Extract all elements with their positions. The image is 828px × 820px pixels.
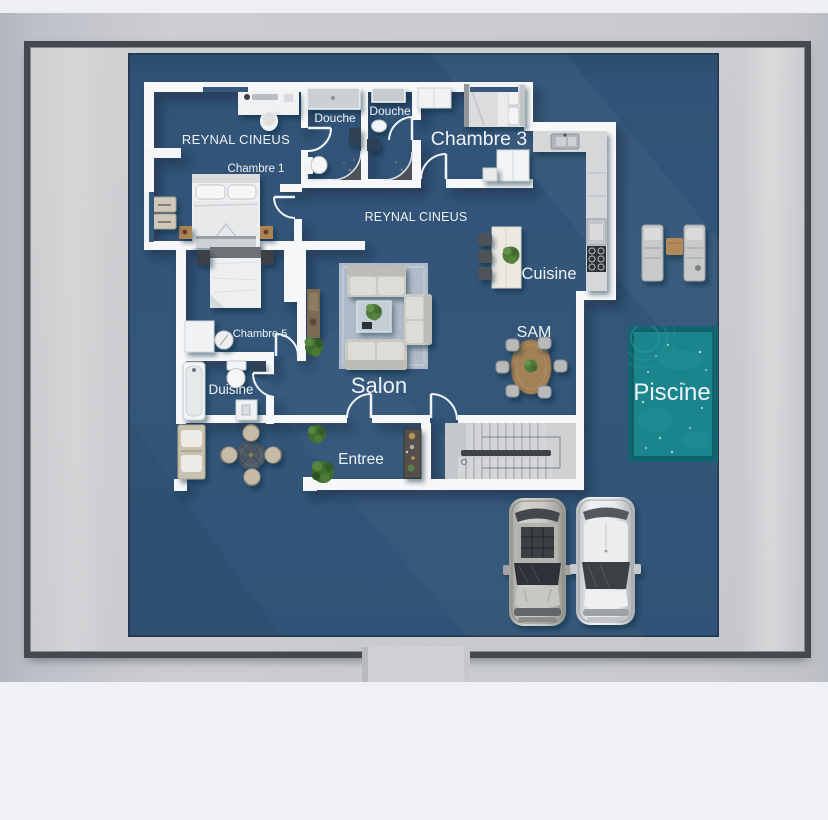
svg-text:Douche: Douche: [369, 104, 411, 118]
svg-text:REYNAL CINEUS: REYNAL CINEUS: [365, 210, 468, 224]
svg-text:Cuisine: Cuisine: [521, 265, 576, 283]
svg-text:Salon: Salon: [351, 373, 407, 398]
svg-text:REYNAL CINEUS: REYNAL CINEUS: [182, 132, 290, 147]
svg-text:Chambre 5: Chambre 5: [233, 328, 287, 340]
svg-text:Duisine: Duisine: [208, 382, 253, 397]
svg-text:SAM: SAM: [517, 324, 552, 341]
svg-text:Chambre 3: Chambre 3: [431, 128, 527, 150]
svg-text:Douche: Douche: [314, 111, 356, 125]
svg-text:Chambre 1: Chambre 1: [228, 163, 285, 175]
svg-text:Entree: Entree: [338, 451, 384, 468]
svg-text:Piscine: Piscine: [633, 379, 710, 406]
